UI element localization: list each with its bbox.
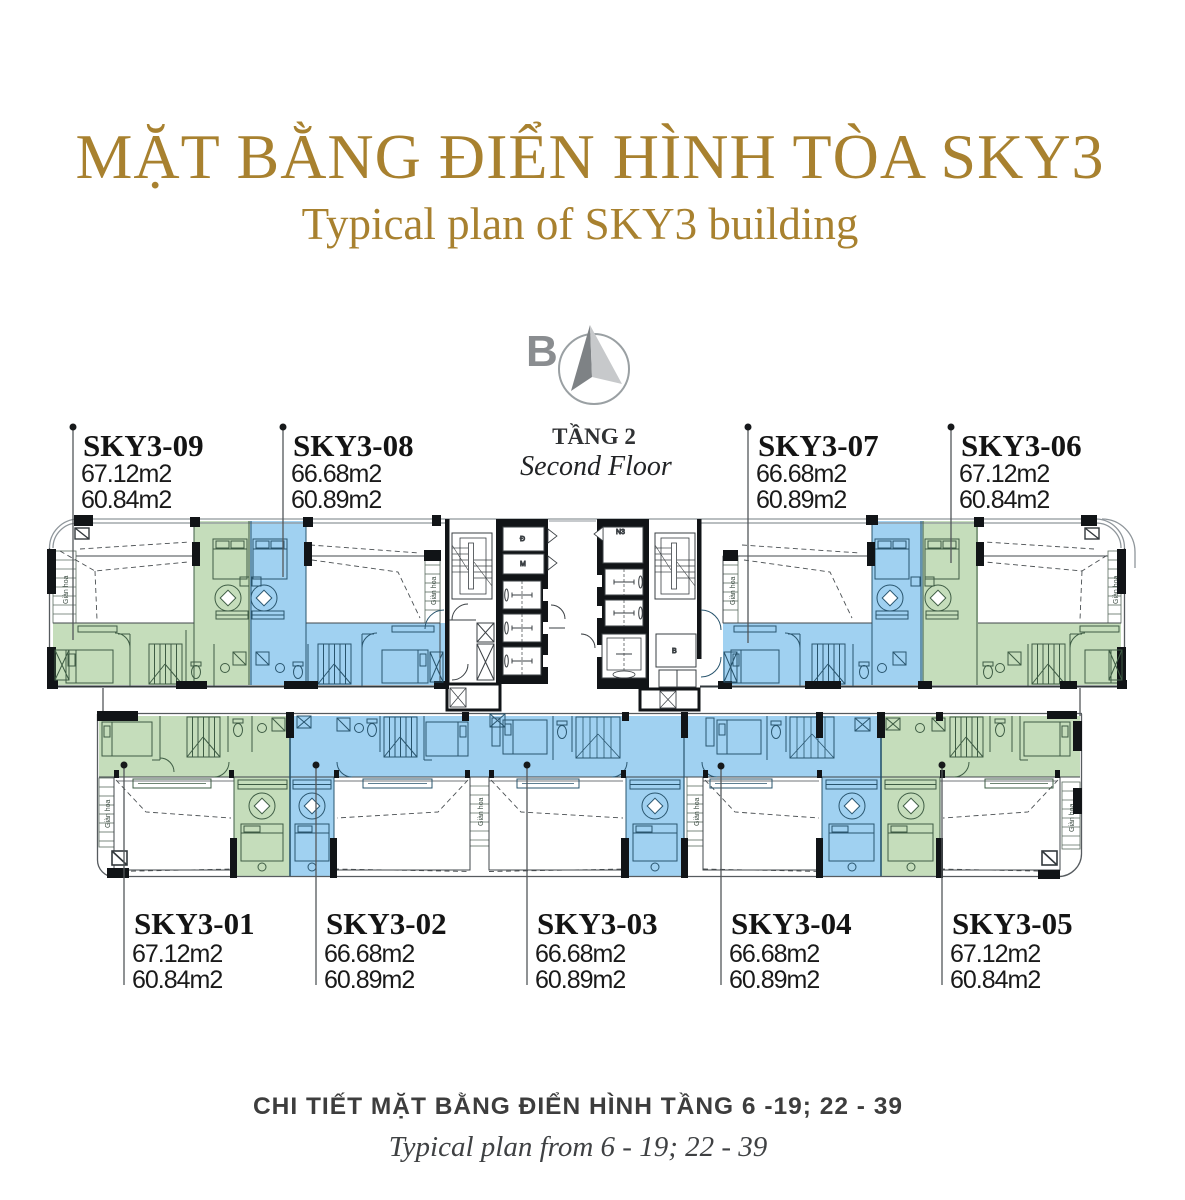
- svg-text:SKY3-06: SKY3-06: [961, 428, 1082, 463]
- svg-text:CHI TIẾT MẶT BẰNG ĐIỂN HÌNH TẦ: CHI TIẾT MẶT BẰNG ĐIỂN HÌNH TẦNG 6 -19; …: [253, 1092, 903, 1120]
- svg-text:67.12m2: 67.12m2: [959, 460, 1049, 488]
- svg-text:TẦNG 2: TẦNG 2: [552, 423, 636, 449]
- svg-text:60.84m2: 60.84m2: [81, 486, 171, 514]
- svg-text:SKY3-01: SKY3-01: [134, 906, 255, 941]
- svg-text:N3: N3: [616, 529, 625, 536]
- svg-text:60.89m2: 60.89m2: [756, 486, 846, 514]
- svg-text:60.89m2: 60.89m2: [729, 966, 819, 994]
- svg-text:67.12m2: 67.12m2: [132, 940, 222, 968]
- svg-text:Giàn hoa: Giàn hoa: [478, 797, 485, 826]
- svg-text:60.84m2: 60.84m2: [132, 966, 222, 994]
- svg-text:Giàn hoa: Giàn hoa: [63, 575, 70, 604]
- svg-text:66.68m2: 66.68m2: [756, 460, 846, 488]
- svg-text:M: M: [520, 561, 526, 568]
- svg-text:SKY3-09: SKY3-09: [83, 428, 204, 463]
- svg-text:SKY3-03: SKY3-03: [537, 906, 658, 941]
- svg-text:SKY3-04: SKY3-04: [731, 906, 852, 941]
- svg-text:SKY3-07: SKY3-07: [758, 428, 879, 463]
- svg-text:B: B: [672, 648, 677, 655]
- svg-text:Giàn hoa: Giàn hoa: [431, 576, 438, 605]
- svg-text:60.89m2: 60.89m2: [535, 966, 625, 994]
- svg-text:Giàn hoa: Giàn hoa: [694, 797, 701, 826]
- svg-text:Typical plan of SKY3 building: Typical plan of SKY3 building: [302, 199, 859, 249]
- svg-text:66.68m2: 66.68m2: [729, 940, 819, 968]
- svg-text:B: B: [526, 327, 558, 376]
- svg-text:67.12m2: 67.12m2: [950, 940, 1040, 968]
- svg-text:SKY3-05: SKY3-05: [952, 906, 1073, 941]
- svg-text:SKY3-08: SKY3-08: [293, 428, 414, 463]
- svg-text:Giàn hoa: Giàn hoa: [105, 799, 112, 828]
- svg-text:60.89m2: 60.89m2: [291, 486, 381, 514]
- svg-text:SKY3-02: SKY3-02: [326, 906, 447, 941]
- svg-text:Typical plan from 6 - 19; 22 -: Typical plan from 6 - 19; 22 - 39: [389, 1131, 768, 1163]
- svg-text:MẶT BẰNG ĐIỂN HÌNH TÒA SKY3: MẶT BẰNG ĐIỂN HÌNH TÒA SKY3: [75, 121, 1104, 192]
- svg-text:60.89m2: 60.89m2: [324, 966, 414, 994]
- svg-text:Giàn hoa: Giàn hoa: [730, 576, 737, 605]
- svg-text:67.12m2: 67.12m2: [81, 460, 171, 488]
- svg-text:60.84m2: 60.84m2: [959, 486, 1049, 514]
- svg-text:Đ: Đ: [520, 536, 525, 543]
- svg-text:60.84m2: 60.84m2: [950, 966, 1040, 994]
- svg-text:66.68m2: 66.68m2: [291, 460, 381, 488]
- svg-text:66.68m2: 66.68m2: [535, 940, 625, 968]
- svg-text:66.68m2: 66.68m2: [324, 940, 414, 968]
- svg-text:Second Floor: Second Floor: [520, 451, 672, 482]
